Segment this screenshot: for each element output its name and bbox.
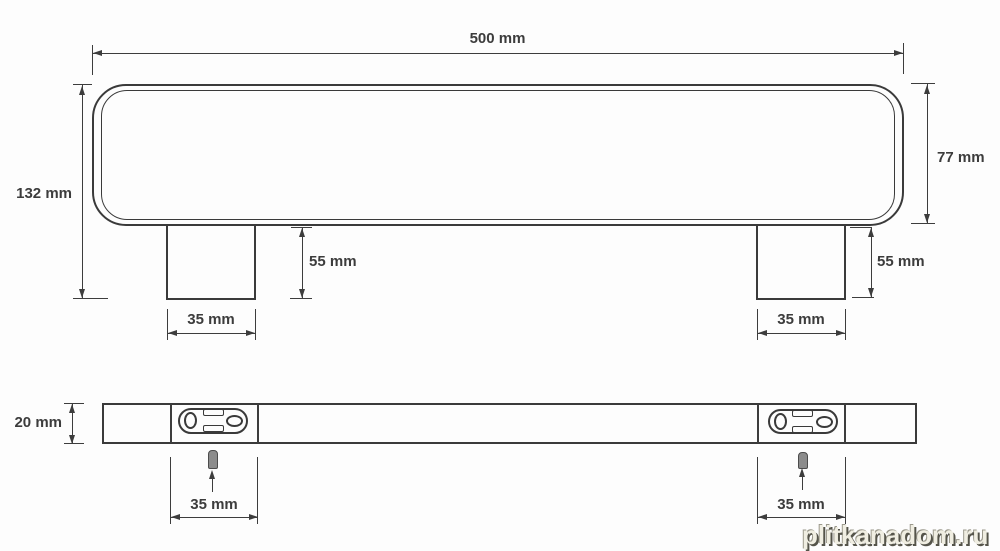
right-mount-slot-bottom xyxy=(792,426,813,433)
dim-55r-arrow-top xyxy=(868,228,874,237)
bottom-left-plate-divider-right xyxy=(257,404,259,443)
dim-132-label: 132 mm xyxy=(6,185,72,202)
dim-55r-arrow-bottom xyxy=(868,288,874,297)
bottom-left-plate-divider-left xyxy=(170,404,172,443)
dim-132-arrow-bottom xyxy=(79,289,85,298)
dim-35fl-extension-right xyxy=(255,309,256,340)
right-mount-slot-top xyxy=(792,410,813,417)
right-screw-icon xyxy=(798,452,808,469)
dim-35bl-line xyxy=(170,517,258,518)
dim-20-arrow-bottom xyxy=(69,435,75,444)
right-mount-hole-oval xyxy=(816,416,833,428)
dim-55l-line xyxy=(302,228,303,298)
site-watermark: plitkanadom.ru xyxy=(802,520,1000,551)
right-screw-pointer-arrow xyxy=(799,468,805,477)
dim-35fl-arrow-right xyxy=(246,330,255,336)
front-left-leg xyxy=(166,225,256,300)
left-screw-icon xyxy=(208,450,218,469)
dim-77-arrow-top xyxy=(924,85,930,94)
bottom-right-plate-divider-right xyxy=(844,404,846,443)
dim-35bl-arrow-left xyxy=(171,514,180,520)
dim-77-label: 77 mm xyxy=(937,149,985,166)
dim-35fr-extension-right xyxy=(845,309,846,340)
dim-132-tick-bottom xyxy=(73,298,108,299)
dim-35fr-line xyxy=(757,333,845,334)
dim-35fl-line xyxy=(167,333,255,334)
right-mount-hole-round xyxy=(774,413,787,430)
dim-77-tick-bottom xyxy=(911,223,935,224)
dim-55l-label: 55 mm xyxy=(309,253,357,270)
dim-35fr-arrow-left xyxy=(758,330,767,336)
dim-35fr-label: 35 mm xyxy=(757,311,845,328)
dim-35br-arrow-left xyxy=(758,514,767,520)
dim-132-arrow-top xyxy=(79,86,85,95)
dim-77-arrow-bottom xyxy=(924,214,930,223)
dim-500-label: 500 mm xyxy=(92,30,903,47)
left-mount-hole-round xyxy=(184,412,197,429)
dim-55r-line xyxy=(871,228,872,297)
dim-500-arrow-right xyxy=(894,50,903,56)
left-mount-slot-top xyxy=(203,409,224,416)
dim-132-line xyxy=(82,85,83,298)
bottom-right-plate-divider-left xyxy=(757,404,759,443)
dim-20-arrow-top xyxy=(69,404,75,413)
dim-55r-label: 55 mm xyxy=(877,253,925,270)
dim-500-extension-right xyxy=(903,43,904,74)
dim-55l-arrow-top xyxy=(299,228,305,237)
dim-35fr-arrow-right xyxy=(836,330,845,336)
dim-35fl-arrow-left xyxy=(168,330,177,336)
dim-20-label: 20 mm xyxy=(10,414,62,431)
left-mount-slot-bottom xyxy=(203,425,224,432)
dim-500-arrow-left xyxy=(93,50,102,56)
dim-35bl-label: 35 mm xyxy=(170,496,258,513)
dim-55l-arrow-bottom xyxy=(299,289,305,298)
left-screw-pointer-arrow xyxy=(209,470,215,479)
left-mount-hole-oval xyxy=(226,415,243,427)
dim-55l-tick-bottom xyxy=(290,298,312,299)
dim-35br-label: 35 mm xyxy=(757,496,845,513)
dim-77-line xyxy=(927,84,928,223)
dim-35fl-label: 35 mm xyxy=(167,311,255,328)
dim-500-line xyxy=(92,53,903,54)
front-right-leg xyxy=(756,225,846,300)
technical-drawing-canvas: 500 mm 132 mm 77 mm 55 mm 55 mm 35 mm 35… xyxy=(0,0,1000,551)
dim-55r-tick-bottom xyxy=(852,297,874,298)
dim-77-tick-top xyxy=(911,83,935,84)
front-body-inner-outline xyxy=(101,90,895,220)
dim-35br-extension-right xyxy=(845,457,846,524)
dim-35bl-arrow-right xyxy=(249,514,258,520)
dim-35br-line xyxy=(757,517,845,518)
